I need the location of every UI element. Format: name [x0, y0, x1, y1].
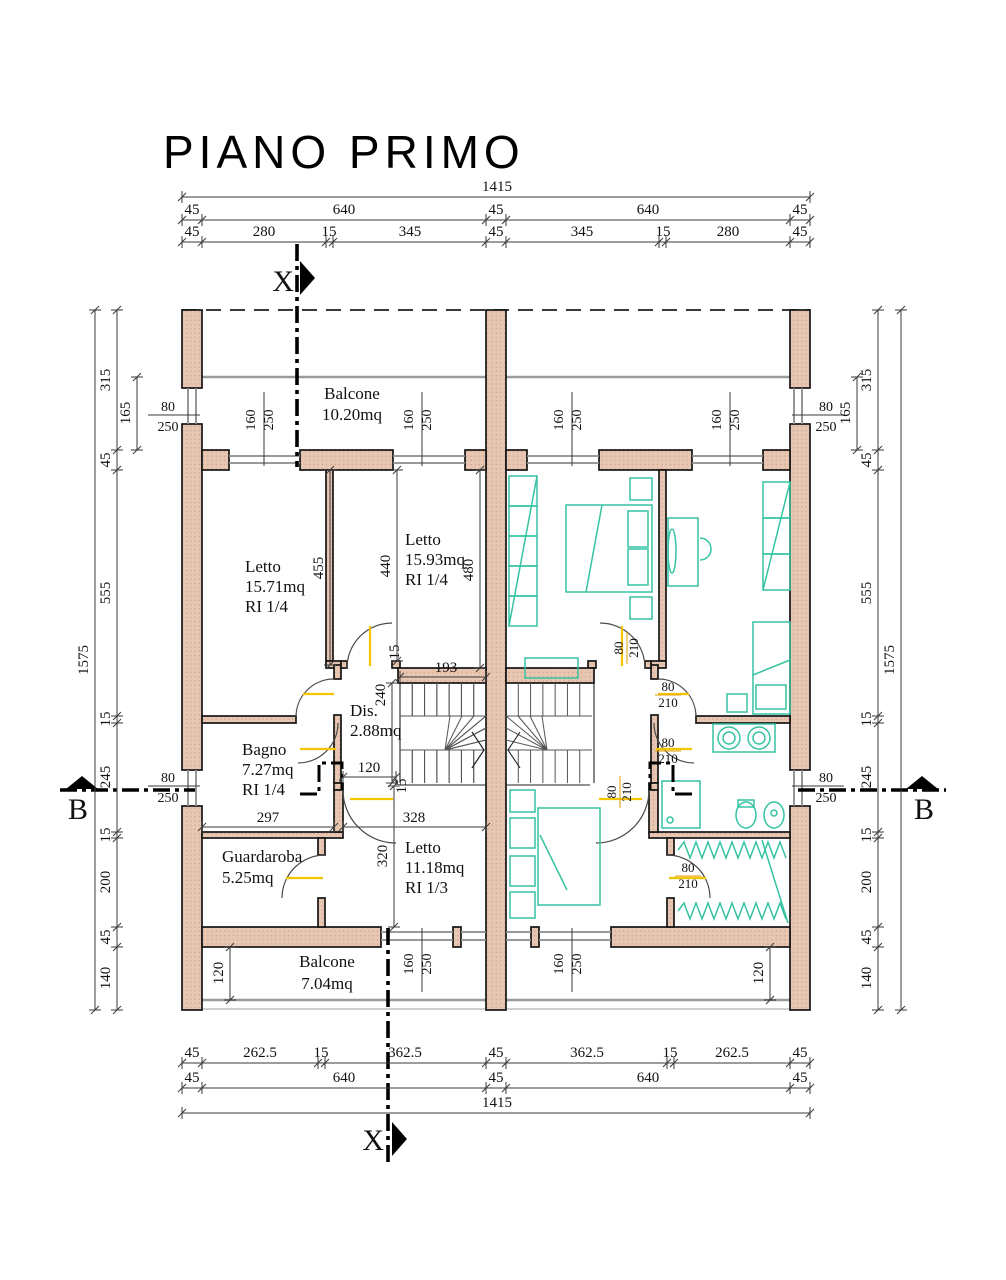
dim-label: 15: [322, 224, 337, 240]
dim-label: 45: [793, 1045, 808, 1061]
room-balcone-bottom: Balcone: [299, 952, 355, 971]
dim-label: 120: [358, 760, 381, 776]
floorplan-page: PIANO PRIMO: [0, 0, 1006, 1280]
dim-line: [678, 903, 786, 919]
svg-text:80: 80: [662, 679, 675, 694]
dim-label: 140: [98, 967, 114, 990]
room-guardaroba: Guardaroba: [222, 847, 303, 866]
svg-text:7.04mq: 7.04mq: [301, 974, 353, 993]
page-title: PIANO PRIMO: [163, 126, 525, 178]
dim-label: 345: [571, 224, 594, 240]
dim-label: 245: [98, 766, 114, 789]
svg-text:80: 80: [161, 771, 175, 786]
dim-label: 45: [859, 453, 875, 468]
dim-label: 315: [859, 369, 875, 392]
svg-text:250: 250: [816, 791, 837, 806]
svg-text:250: 250: [420, 410, 435, 431]
svg-text:RI 1/4: RI 1/4: [245, 597, 288, 616]
section-b2-label: B: [914, 793, 934, 826]
svg-text:11.18mq: 11.18mq: [405, 858, 465, 877]
svg-text:80: 80: [682, 860, 695, 875]
section-b-label: B: [68, 793, 88, 826]
nightstand: [727, 694, 747, 712]
svg-text:80: 80: [819, 400, 833, 415]
dim-label: 45: [489, 1070, 504, 1086]
dim-label: 555: [859, 582, 875, 605]
dim-label: 480: [461, 559, 477, 582]
furniture: [509, 476, 790, 923]
dim-label: 15: [656, 224, 671, 240]
svg-text:250: 250: [420, 954, 435, 975]
nightstand: [630, 597, 652, 619]
svg-text:250: 250: [728, 410, 743, 431]
svg-text:250: 250: [570, 954, 585, 975]
svg-text:250: 250: [816, 420, 837, 435]
dim-label: 640: [637, 202, 660, 218]
svg-text:RI 1/4: RI 1/4: [242, 780, 285, 799]
dim-label: 640: [637, 1070, 660, 1086]
svg-text:15.71mq: 15.71mq: [245, 577, 305, 596]
svg-text:210: 210: [626, 638, 641, 658]
dim-label: 45: [859, 930, 875, 945]
svg-text:160: 160: [244, 410, 259, 431]
dim-label: 280: [253, 224, 276, 240]
dim-label: 165: [838, 402, 854, 425]
dim-label: 345: [399, 224, 422, 240]
dim-label: 15: [98, 712, 114, 727]
room-letto-b: Letto: [405, 530, 441, 549]
dim-label: 1415: [482, 1095, 512, 1111]
dim-label: 15: [314, 1045, 329, 1061]
section-x-arrow-icon: [300, 261, 315, 295]
dim-label: 362.5: [388, 1045, 422, 1061]
dim-label: 120: [751, 962, 767, 985]
dim-label: 328: [403, 810, 426, 826]
dim-label: 280: [717, 224, 740, 240]
dim-label: 45: [185, 1045, 200, 1061]
dim-label: 245: [859, 766, 875, 789]
dim-label: 165: [118, 402, 134, 425]
svg-text:210: 210: [619, 782, 634, 802]
dim-label: 640: [333, 202, 356, 218]
svg-text:2.88mq: 2.88mq: [350, 721, 402, 740]
svg-text:210: 210: [658, 695, 678, 710]
svg-text:80: 80: [161, 400, 175, 415]
svg-text:160: 160: [402, 410, 417, 431]
dim-label: 45: [793, 224, 808, 240]
dim-label: 1575: [76, 645, 92, 675]
dim-label: 120: [211, 962, 227, 985]
dim-label: 640: [333, 1070, 356, 1086]
svg-text:210: 210: [678, 876, 698, 891]
svg-text:160: 160: [710, 410, 725, 431]
section-x-label: X: [272, 265, 294, 298]
dim-label: 45: [489, 224, 504, 240]
dim-label: 240: [373, 684, 389, 707]
dim-label: 193: [435, 660, 458, 676]
double-bed: [538, 808, 600, 905]
svg-text:10.20mq: 10.20mq: [322, 405, 382, 424]
room-balcone-top: Balcone: [324, 384, 380, 403]
dim-label: 45: [185, 224, 200, 240]
section-x2-label: X: [362, 1124, 384, 1157]
svg-text:7.27mq: 7.27mq: [242, 760, 294, 779]
dim-line: [678, 842, 786, 858]
svg-text:15.93mq: 15.93mq: [405, 550, 465, 569]
svg-text:250: 250: [158, 420, 179, 435]
dim-label: 45: [185, 202, 200, 218]
dim-label: 45: [489, 1045, 504, 1061]
dim-label: 440: [378, 555, 394, 578]
room-bagno: Bagno: [242, 740, 286, 759]
svg-text:160: 160: [402, 954, 417, 975]
dim-label: 45: [793, 202, 808, 218]
dim-label: 262.5: [243, 1045, 277, 1061]
toilet: [736, 802, 756, 828]
desk: [668, 518, 698, 586]
dim-label: 297: [257, 810, 280, 826]
wardrobe-diagonal: [509, 476, 537, 626]
svg-text:250: 250: [262, 410, 277, 431]
dim-label: 15: [663, 1045, 678, 1061]
svg-text:250: 250: [158, 791, 179, 806]
svg-text:RI 1/3: RI 1/3: [405, 878, 448, 897]
nightstand: [630, 478, 652, 500]
dim-label: 200: [98, 871, 114, 894]
svg-text:80: 80: [604, 786, 619, 799]
dim-label: 1575: [882, 645, 898, 675]
floorplan-drawing: PIANO PRIMO: [0, 0, 1006, 1280]
dim-label: 362.5: [570, 1045, 604, 1061]
room-labels: Balcone 10.20mq Letto 15.71mq RI 1/4 Let…: [222, 384, 465, 993]
svg-text:80: 80: [662, 735, 675, 750]
dim-label: 45: [98, 930, 114, 945]
room-letto-a: Letto: [245, 557, 281, 576]
dim-label: 262.5: [715, 1045, 749, 1061]
dim-label: 15: [98, 828, 114, 843]
dim-label: 200: [859, 871, 875, 894]
room-letto-c: Letto: [405, 838, 441, 857]
svg-text:160: 160: [552, 410, 567, 431]
svg-text:80: 80: [611, 642, 626, 655]
svg-text:5.25mq: 5.25mq: [222, 868, 274, 887]
svg-text:250: 250: [570, 410, 585, 431]
section-x2-arrow-icon: [392, 1122, 407, 1156]
dim-label: 455: [311, 557, 327, 580]
section-b-arrow-icon: [66, 776, 98, 789]
dim-label: 320: [375, 845, 391, 868]
dim-label: 555: [98, 582, 114, 605]
dim-label: 45: [793, 1070, 808, 1086]
bidet: [764, 802, 784, 828]
svg-text:RI 1/4: RI 1/4: [405, 570, 448, 589]
svg-text:80: 80: [819, 771, 833, 786]
dim-label: 45: [98, 453, 114, 468]
dim-label: 45: [489, 202, 504, 218]
dim-label: 1415: [482, 179, 512, 195]
section-b2-arrow-icon: [906, 776, 938, 789]
dim-label: 15: [859, 828, 875, 843]
dim-label: 15: [859, 712, 875, 727]
dim-label: 45: [185, 1070, 200, 1086]
svg-text:210: 210: [658, 751, 678, 766]
svg-text:160: 160: [552, 954, 567, 975]
dim-label: 315: [98, 369, 114, 392]
dim-label: 140: [859, 967, 875, 990]
